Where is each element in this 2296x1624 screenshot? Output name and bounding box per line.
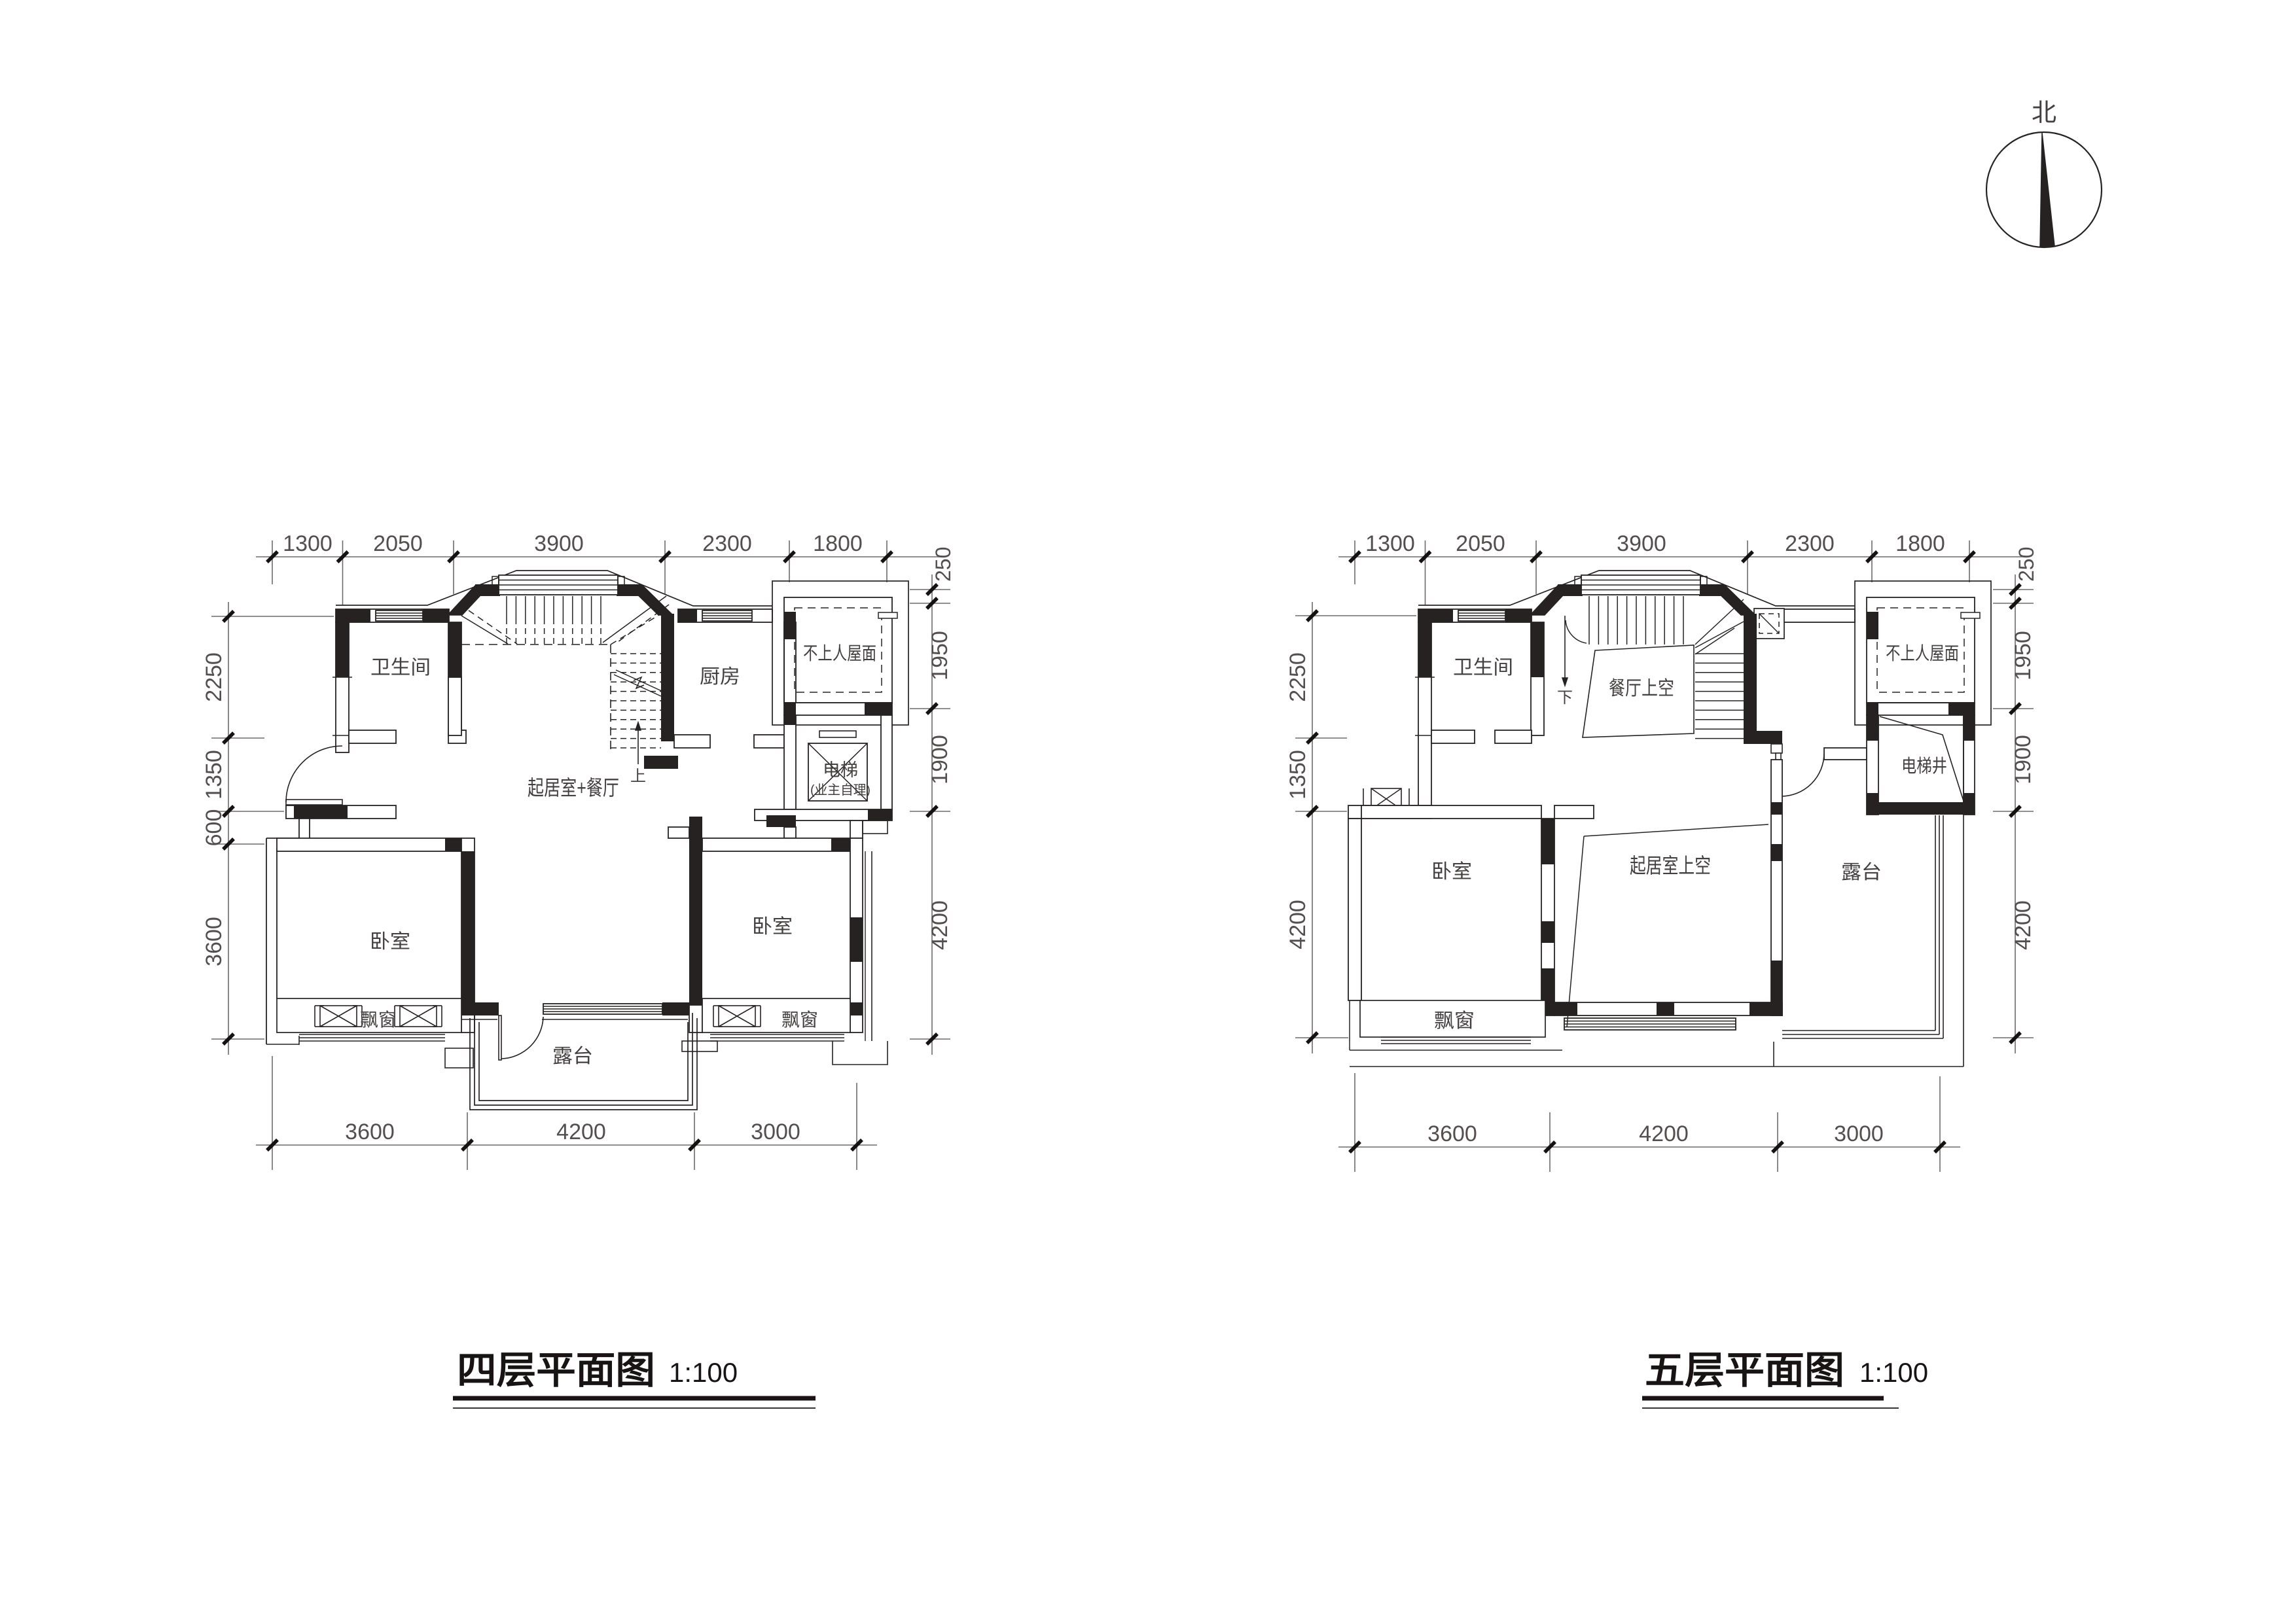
svg-text:电梯: 电梯 (823, 760, 858, 780)
svg-text:1800: 1800 (813, 531, 863, 556)
svg-text:上: 上 (630, 768, 646, 785)
svg-text:250: 250 (931, 547, 955, 582)
svg-text:2300: 2300 (702, 531, 752, 556)
svg-text:1350: 1350 (202, 750, 226, 800)
svg-text:餐厅上空: 餐厅上空 (1609, 678, 1674, 699)
svg-text:4200: 4200 (2011, 900, 2036, 950)
svg-text:卫生间: 卫生间 (1453, 657, 1513, 679)
svg-text:露台: 露台 (552, 1046, 593, 1067)
svg-text:3000: 3000 (1834, 1121, 1884, 1146)
svg-text:卫生间: 卫生间 (370, 657, 431, 679)
svg-text:600: 600 (202, 809, 226, 847)
svg-text:五层平面图: 五层平面图 (1645, 1349, 1844, 1392)
svg-text:电梯井: 电梯井 (1901, 756, 1947, 776)
svg-text:3600: 3600 (345, 1120, 395, 1144)
svg-text:(业主自理): (业主自理) (810, 783, 870, 798)
svg-text:2050: 2050 (373, 531, 423, 556)
svg-text:250: 250 (2015, 547, 2038, 582)
svg-text:1800: 1800 (1895, 531, 1945, 556)
svg-text:4200: 4200 (556, 1120, 606, 1144)
svg-text:1:100: 1:100 (1859, 1357, 1928, 1388)
svg-text:四层平面图: 四层平面图 (457, 1349, 655, 1392)
svg-text:起居室+餐厅: 起居室+餐厅 (528, 776, 619, 800)
svg-text:2250: 2250 (1285, 652, 1310, 702)
svg-text:1950: 1950 (927, 631, 952, 680)
svg-text:2250: 2250 (202, 652, 226, 702)
svg-text:1900: 1900 (2011, 735, 2036, 785)
svg-text:露台: 露台 (1841, 862, 1882, 883)
svg-text:不上人屋面: 不上人屋面 (1886, 643, 1959, 663)
svg-text:下: 下 (1557, 689, 1573, 707)
svg-text:飘窗: 飘窗 (1434, 1010, 1475, 1032)
svg-text:4200: 4200 (927, 900, 952, 950)
svg-text:3900: 3900 (1617, 531, 1666, 556)
svg-text:厨房: 厨房 (700, 666, 740, 688)
svg-text:3900: 3900 (534, 531, 584, 556)
svg-text:3600: 3600 (1427, 1121, 1477, 1146)
svg-text:3000: 3000 (751, 1120, 800, 1144)
svg-text:北: 北 (2032, 99, 2056, 127)
svg-text:不上人屋面: 不上人屋面 (803, 643, 876, 663)
svg-text:飘窗: 飘窗 (781, 1010, 818, 1030)
svg-text:4200: 4200 (1639, 1121, 1689, 1146)
svg-text:2300: 2300 (1785, 531, 1835, 556)
svg-text:1300: 1300 (283, 531, 332, 556)
svg-text:4200: 4200 (1285, 900, 1310, 949)
svg-text:1:100: 1:100 (669, 1357, 738, 1388)
svg-text:1950: 1950 (2011, 631, 2036, 680)
svg-text:卧室: 卧室 (1431, 861, 1472, 883)
svg-text:2050: 2050 (1456, 531, 1505, 556)
svg-text:3600: 3600 (202, 917, 226, 966)
svg-text:1300: 1300 (1365, 531, 1415, 556)
svg-text:飘窗: 飘窗 (360, 1010, 397, 1030)
svg-text:1900: 1900 (927, 735, 952, 785)
svg-text:卧室: 卧室 (752, 916, 793, 938)
svg-text:卧室: 卧室 (370, 931, 410, 953)
svg-text:1350: 1350 (1285, 750, 1310, 800)
svg-text:起居室上空: 起居室上空 (1630, 854, 1711, 877)
